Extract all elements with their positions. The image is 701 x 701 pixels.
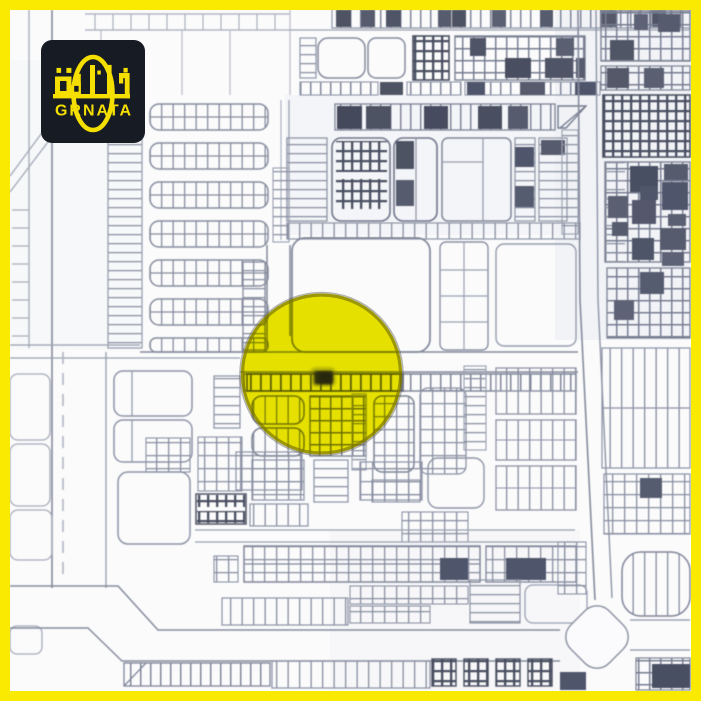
svg-text:GRNATA: GRNATA <box>55 102 133 119</box>
